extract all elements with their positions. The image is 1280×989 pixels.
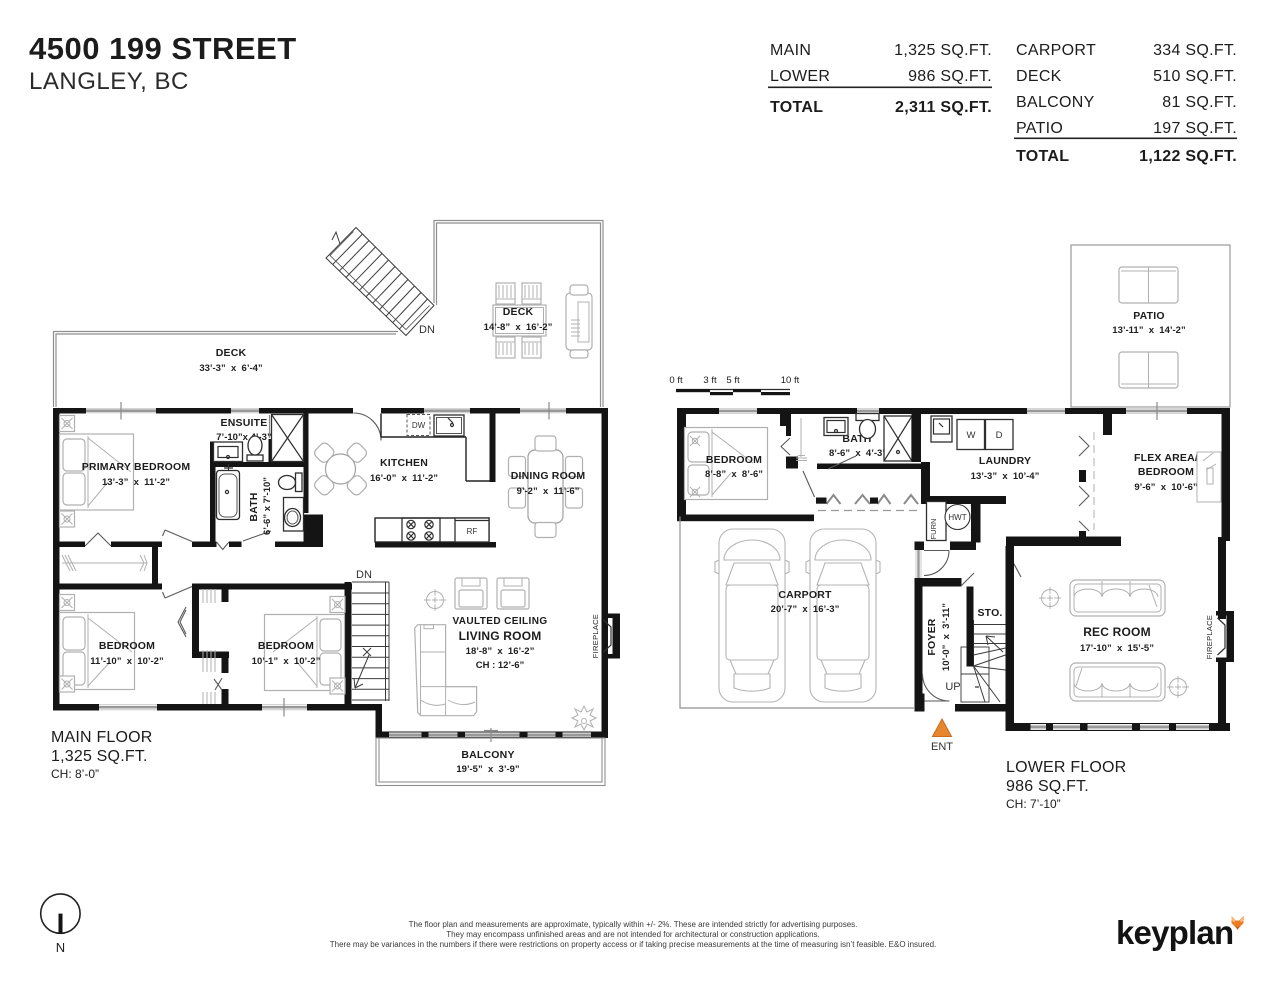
svg-text:W: W (967, 430, 976, 441)
svg-text:BEDROOM: BEDROOM (1138, 466, 1194, 478)
svg-text:BEDROOM: BEDROOM (706, 454, 762, 466)
svg-text:13’-3” x 10’-4”: 13’-3” x 10’-4” (971, 471, 1040, 482)
svg-text:13’-11” x 14’-2”: 13’-11” x 14’-2” (1112, 325, 1186, 336)
svg-text:LAUNDRY: LAUNDRY (979, 455, 1031, 467)
svg-text:KITCHEN: KITCHEN (380, 457, 428, 469)
svg-text:DW: DW (412, 421, 426, 430)
svg-text:PRIMARY BEDROOM: PRIMARY BEDROOM (82, 461, 191, 473)
svg-text:6’-6” x 7’-10”: 6’-6” x 7’-10” (262, 477, 273, 535)
svg-text:STO.: STO. (977, 607, 1002, 619)
svg-text:UP: UP (945, 681, 960, 693)
svg-text:1,325 SQ.FT.: 1,325 SQ.FT. (894, 42, 992, 59)
svg-text:PATIO: PATIO (1133, 310, 1165, 322)
svg-text:MAIN: MAIN (770, 42, 811, 59)
svg-text:CARPORT: CARPORT (778, 589, 832, 601)
svg-text:3 ft: 3 ft (703, 375, 717, 386)
svg-text:LOWER FLOOR: LOWER FLOOR (1006, 759, 1126, 776)
svg-text:FLEX AREA/: FLEX AREA/ (1134, 452, 1198, 464)
svg-text:N: N (56, 940, 65, 955)
svg-text:REC ROOM: REC ROOM (1083, 625, 1151, 639)
svg-text:DECK: DECK (216, 347, 247, 359)
svg-text:keyplan: keyplan (1116, 914, 1233, 951)
svg-text:17’-10” x 15’-5”: 17’-10” x 15’-5” (1080, 643, 1154, 654)
svg-text:DECK: DECK (1016, 68, 1062, 85)
svg-text:10 ft: 10 ft (781, 375, 800, 386)
svg-text:RF: RF (467, 527, 478, 536)
svg-text:MAIN FLOOR: MAIN FLOOR (51, 729, 153, 746)
svg-text:D: D (996, 430, 1003, 441)
svg-text:5 ft: 5 ft (726, 375, 740, 386)
svg-text:DN: DN (419, 324, 435, 336)
svg-text:LIVING ROOM: LIVING ROOM (459, 629, 542, 643)
svg-text:0 ft: 0 ft (669, 375, 683, 386)
svg-text:20’-7” x 16’-3”: 20’-7” x 16’-3” (771, 604, 840, 615)
svg-text:33’-3” x 6’-4”: 33’-3” x 6’-4” (199, 363, 263, 374)
svg-text:TOTAL: TOTAL (1016, 148, 1069, 165)
svg-text:4500 199 STREET: 4500 199 STREET (29, 31, 297, 66)
svg-text:18’-8” x 16’-2”: 18’-8” x 16’-2” (466, 646, 535, 657)
svg-text:FURN: FURN (929, 519, 938, 540)
svg-text:13’-3” x 11’-2”: 13’-3” x 11’-2” (102, 477, 170, 488)
svg-text:TOTAL: TOTAL (770, 99, 823, 116)
svg-text:There may be variances in the: There may be variances in the numbers if… (330, 940, 937, 949)
svg-text:They may encompass unfinished: They may encompass unfinished areas and … (446, 930, 820, 939)
svg-text:CARPORT: CARPORT (1016, 42, 1096, 59)
svg-text:LANGLEY, BC: LANGLEY, BC (29, 68, 189, 95)
svg-text:CH: 8’-0”: CH: 8’-0” (51, 767, 99, 781)
svg-text:986 SQ.FT.: 986 SQ.FT. (1006, 778, 1089, 795)
svg-text:BALCONY: BALCONY (461, 749, 514, 761)
svg-text:1,122 SQ.FT.: 1,122 SQ.FT. (1139, 148, 1237, 165)
svg-text:9’-6” x 10’-6”: 9’-6” x 10’-6” (1134, 482, 1198, 493)
svg-text:14’-8” x 16’-2”: 14’-8” x 16’-2” (484, 322, 553, 333)
svg-text:PATIO: PATIO (1016, 120, 1063, 137)
svg-text:BEDROOM: BEDROOM (258, 640, 314, 652)
svg-text:DECK: DECK (503, 306, 534, 318)
svg-text:LOWER: LOWER (770, 68, 830, 85)
svg-text:986 SQ.FT.: 986 SQ.FT. (908, 68, 992, 85)
svg-text:BEDROOM: BEDROOM (99, 640, 155, 652)
svg-text:510 SQ.FT.: 510 SQ.FT. (1153, 68, 1237, 85)
svg-text:BATH: BATH (248, 492, 260, 521)
svg-text:FIREPLACE: FIREPLACE (1205, 615, 1214, 659)
svg-text:334 SQ.FT.: 334 SQ.FT. (1153, 42, 1237, 59)
svg-text:81 SQ.FT.: 81 SQ.FT. (1162, 94, 1237, 111)
svg-text:16’-0” x 11’-2”: 16’-0” x 11’-2” (370, 473, 438, 484)
svg-text:CH: 7’-10”: CH: 7’-10” (1006, 797, 1061, 811)
svg-text:197 SQ.FT.: 197 SQ.FT. (1153, 120, 1237, 137)
svg-text:11’-10” x 10’-2”: 11’-10” x 10’-2” (90, 656, 164, 667)
svg-text:DN: DN (356, 569, 372, 581)
svg-text:DINING ROOM: DINING ROOM (511, 470, 586, 482)
svg-text:10’-1” x 10’-2”: 10’-1” x 10’-2” (252, 656, 321, 667)
svg-text:10’-0” x 3’-11”: 10’-0” x 3’-11” (941, 603, 952, 671)
svg-text:19’-5” x 3’-9”: 19’-5” x 3’-9” (456, 764, 520, 775)
svg-text:9’-2” x 11’-6”: 9’-2” x 11’-6” (517, 486, 580, 497)
svg-text:1,325 SQ.FT.: 1,325 SQ.FT. (51, 748, 148, 765)
svg-text:ENT: ENT (931, 741, 953, 753)
svg-text:8’-6” x 4’-3”: 8’-6” x 4’-3” (829, 448, 887, 459)
svg-text:The floor plan and measurement: The floor plan and measurements are appr… (409, 920, 858, 929)
svg-text:BALCONY: BALCONY (1016, 94, 1095, 111)
svg-text:CH : 12’-6”: CH : 12’-6” (476, 660, 525, 671)
svg-text:VAULTED CEILING: VAULTED CEILING (452, 616, 547, 627)
svg-text:FOYER: FOYER (926, 618, 938, 655)
svg-text:2,311 SQ.FT.: 2,311 SQ.FT. (895, 99, 992, 116)
svg-text:HWT: HWT (948, 513, 966, 522)
svg-text:FIREPLACE: FIREPLACE (591, 614, 600, 658)
svg-text:8’-8” x 8’-6”: 8’-8” x 8’-6” (705, 469, 763, 480)
svg-text:ENSUITE: ENSUITE (221, 417, 268, 429)
